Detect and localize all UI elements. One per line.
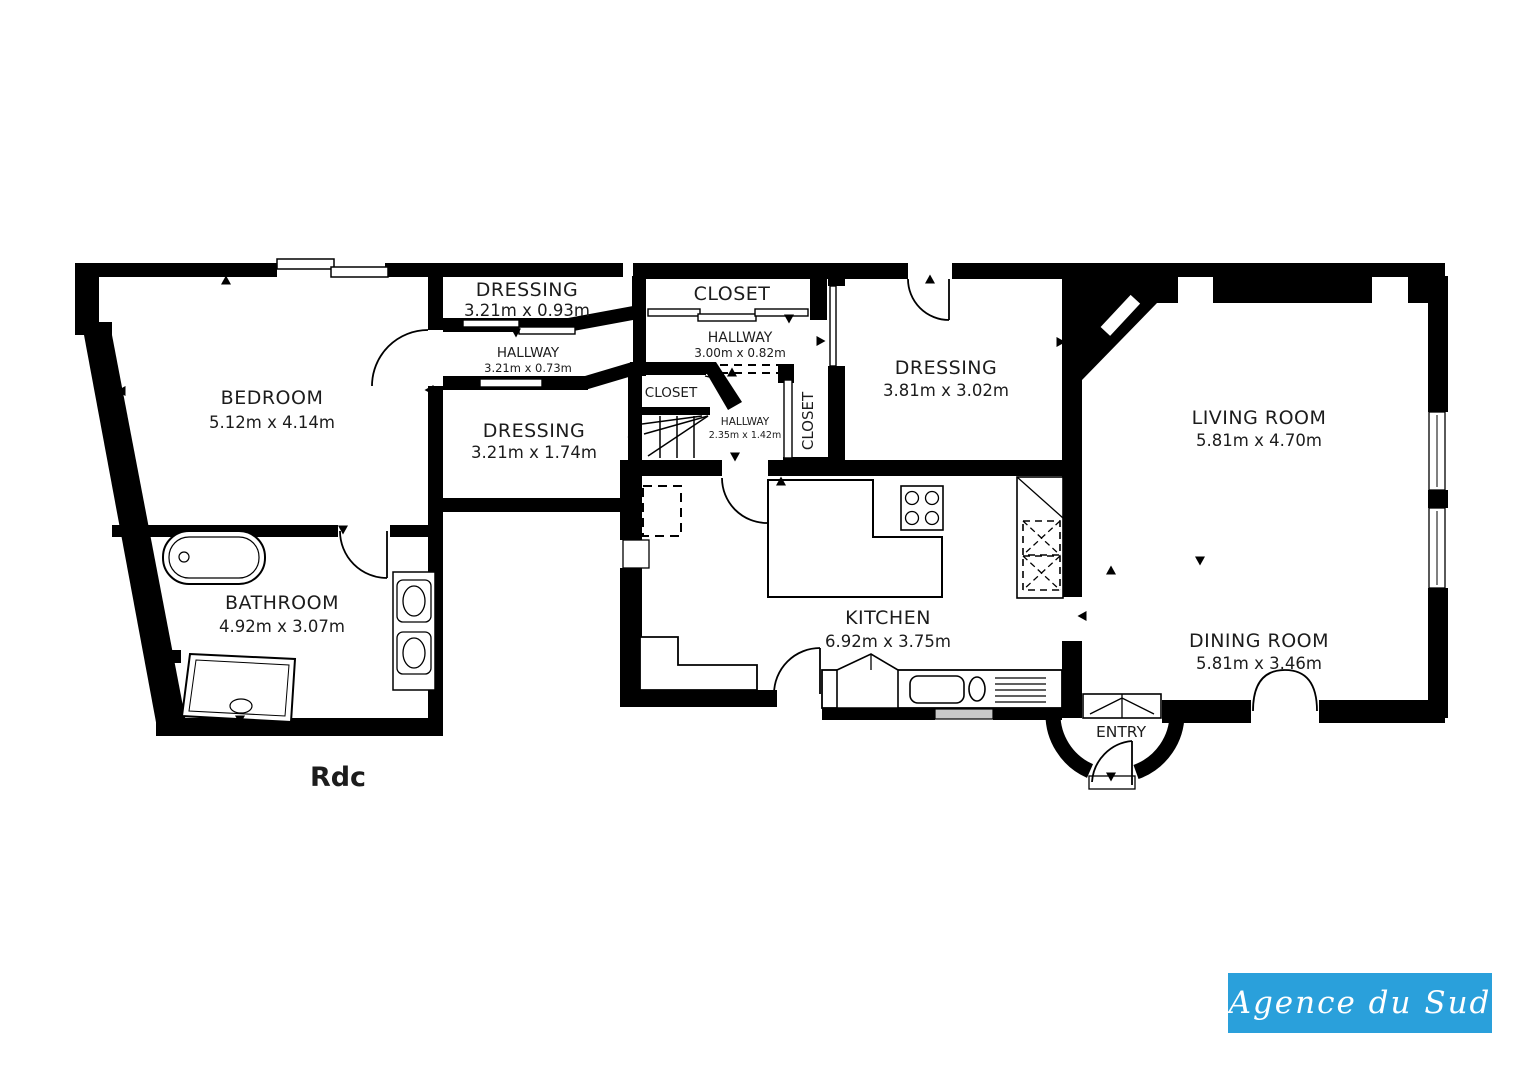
closet-small-label: CLOSET <box>645 385 698 401</box>
agency-logo: Agence du Sud <box>1228 973 1492 1033</box>
floor-plan-page: BEDROOM 5.12m x 4.14m BATHROOM 4.92m x 3… <box>0 0 1532 1080</box>
stove-icon <box>901 486 943 530</box>
hallway-mid-dims: 3.00m x 0.82m <box>694 346 786 360</box>
living-niche <box>1178 277 1213 303</box>
shower-icon <box>182 654 295 722</box>
kitchen-sink-icon <box>910 676 964 703</box>
fridge-space-dashed <box>643 486 681 536</box>
hallway-mid-label: HALLWAY <box>708 330 773 346</box>
bedroom-label: BEDROOM <box>221 387 324 409</box>
kitchen-corner-cabinet <box>640 637 757 690</box>
kitchen-label: KITCHEN <box>845 607 931 629</box>
kitchen-dims: 6.92m x 3.75m <box>825 632 951 651</box>
hallway-stairs-dims: 2.35m x 1.42m <box>709 430 781 441</box>
agency-logo-text: Agence du Sud <box>1229 985 1492 1021</box>
dressing-east-label: DRESSING <box>895 357 998 379</box>
bedroom-dims: 5.12m x 4.14m <box>209 413 335 432</box>
kitchen-sink-counter <box>822 654 1062 708</box>
floor-plan-drawing: BEDROOM 5.12m x 4.14m BATHROOM 4.92m x 3… <box>0 0 1532 1080</box>
entry-curved-wall <box>1053 712 1177 772</box>
dining-room-label: DINING ROOM <box>1189 630 1329 652</box>
entry-label: ENTRY <box>1096 723 1147 741</box>
living-room-label: LIVING ROOM <box>1192 407 1327 429</box>
floor-label: Rdc <box>310 762 366 793</box>
hallway-west-dims: 3.21m x 0.73m <box>484 361 572 375</box>
stairs <box>642 416 708 458</box>
closet-top-label: CLOSET <box>694 283 771 305</box>
kitchen-wall-niche <box>623 540 649 568</box>
bathroom-label: BATHROOM <box>225 592 339 614</box>
bathtub-icon <box>163 531 265 584</box>
dressing-mid-label: DRESSING <box>483 420 586 442</box>
living-room-dims: 5.81m x 4.70m <box>1196 431 1322 450</box>
dressing-east-dims: 3.81m x 3.02m <box>883 381 1009 400</box>
living-niche <box>1372 277 1408 303</box>
bedroom-window-icon <box>331 267 388 277</box>
dressing-top-dims: 3.21m x 0.93m <box>464 301 590 320</box>
bathroom-dims: 4.92m x 3.07m <box>219 617 345 636</box>
closet-vertical-label: CLOSET <box>799 391 817 450</box>
bedroom-window-icon <box>277 259 334 269</box>
kitchen-window-icon <box>935 709 993 719</box>
bathroom-vanity-sinks <box>393 572 435 690</box>
dressing-top-label: DRESSING <box>476 279 579 301</box>
entry-wardrobe-icon <box>1083 694 1161 718</box>
hallway-west-label: HALLWAY <box>497 345 560 361</box>
dressing-mid-dims: 3.21m x 1.74m <box>471 443 597 462</box>
kitchen-right-counter-appliances <box>1017 477 1063 598</box>
hallway-stairs-label: HALLWAY <box>721 416 770 428</box>
dining-room-dims: 5.81m x 3.46m <box>1196 654 1322 673</box>
